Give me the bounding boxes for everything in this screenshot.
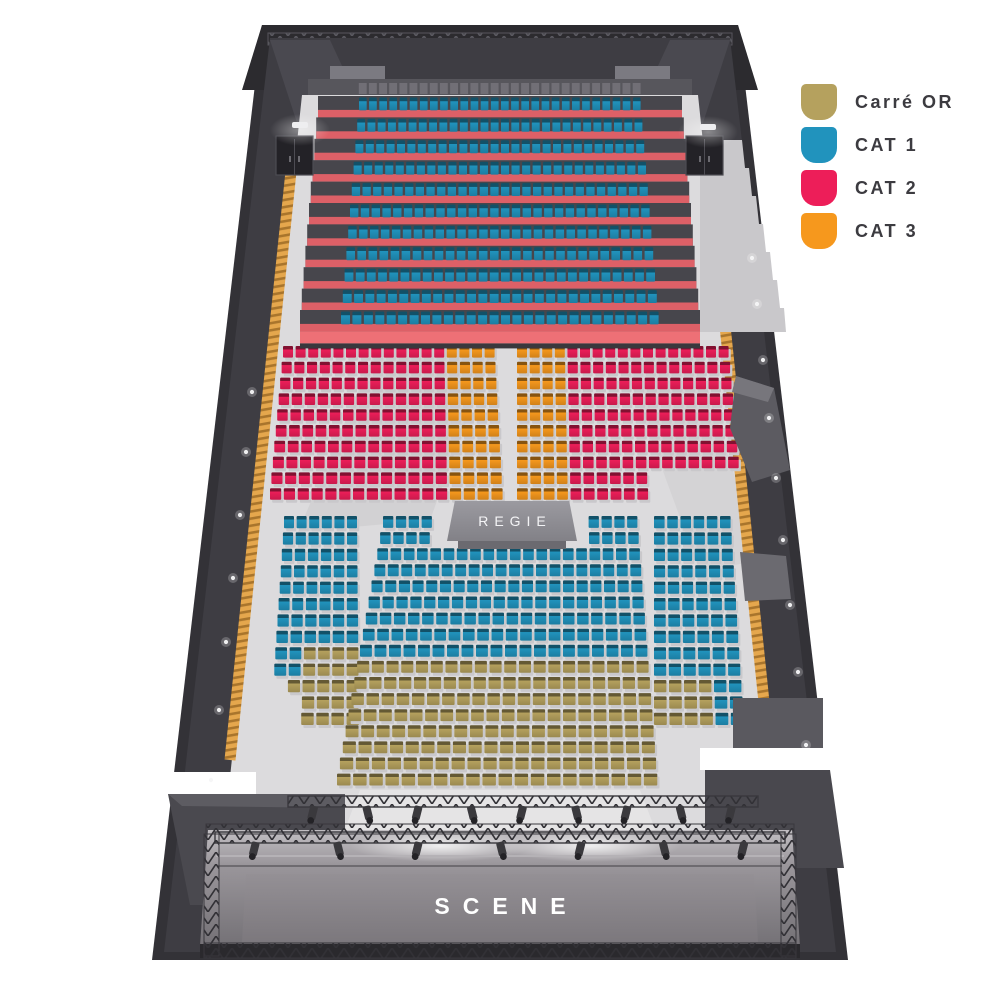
seat (432, 312, 441, 325)
seat (408, 488, 419, 500)
seat (481, 580, 492, 592)
seat (509, 564, 520, 576)
seat (658, 393, 668, 405)
seat (447, 205, 455, 218)
seat (305, 631, 317, 643)
seat (511, 119, 519, 132)
seat (686, 425, 696, 437)
seat (312, 488, 323, 500)
seat (510, 548, 521, 560)
seat (624, 269, 633, 282)
seat (355, 140, 363, 153)
seat (520, 645, 532, 657)
seat-backrest (420, 83, 428, 94)
seat (369, 774, 383, 786)
seat (317, 409, 328, 421)
seat (573, 119, 581, 132)
seat (481, 119, 489, 132)
seat (392, 725, 405, 737)
seat (475, 425, 486, 437)
wall-light-icon (788, 603, 792, 607)
seat (501, 312, 510, 325)
seat (553, 140, 561, 153)
seat (568, 362, 578, 374)
seat (521, 98, 529, 111)
seat (555, 205, 563, 218)
seat (684, 696, 697, 708)
seat (422, 613, 434, 625)
seat (545, 247, 554, 260)
seat (556, 393, 566, 405)
seat (434, 629, 446, 641)
seat (547, 774, 561, 786)
seat (387, 140, 395, 153)
seat (501, 205, 509, 218)
legend-item-c2: CAT 2 (801, 170, 954, 206)
seat (565, 183, 573, 196)
seat (489, 677, 501, 689)
seat (409, 441, 420, 453)
seat (595, 741, 608, 753)
seat (533, 693, 546, 705)
seat (597, 472, 608, 484)
seat (583, 457, 594, 469)
seat (393, 532, 404, 544)
seat (604, 312, 613, 325)
seat (478, 290, 487, 303)
seat (588, 226, 597, 239)
seat (373, 183, 381, 196)
seat (548, 709, 561, 721)
seat (364, 312, 373, 325)
seat (370, 226, 379, 239)
seat (491, 140, 499, 153)
seat (480, 597, 491, 609)
seat (375, 645, 387, 657)
seat (669, 680, 681, 692)
seat (332, 647, 344, 659)
seat (501, 247, 510, 260)
seat (347, 516, 357, 528)
seat (428, 140, 436, 153)
seat (504, 661, 516, 673)
wing-tower-right (733, 698, 823, 748)
seat (483, 548, 494, 560)
seat (422, 362, 432, 374)
seat (409, 409, 420, 421)
seat (670, 378, 680, 390)
seat (590, 580, 601, 592)
seat (359, 741, 372, 753)
seat (322, 516, 332, 528)
seat-backrest (541, 83, 549, 94)
seat (396, 516, 406, 528)
seat (628, 774, 642, 786)
seat (319, 631, 331, 643)
seat (608, 409, 618, 421)
regie-booth: REGIE (447, 501, 577, 541)
seat (548, 661, 560, 673)
seat (501, 140, 509, 153)
seat (471, 98, 479, 111)
seat (436, 205, 444, 218)
seat (637, 661, 649, 673)
seat (377, 629, 389, 641)
seat (699, 680, 711, 692)
legend-label: Carré OR (855, 92, 954, 113)
seat (273, 457, 284, 469)
seat (642, 741, 655, 753)
seat (620, 393, 630, 405)
wall-light-icon (750, 256, 754, 260)
seat (604, 580, 615, 592)
wall-light-icon (767, 416, 771, 420)
seat (608, 677, 620, 689)
seat (634, 425, 644, 437)
seat (523, 564, 534, 576)
seat (634, 247, 643, 260)
seat (418, 140, 426, 153)
seat (697, 393, 707, 405)
seat (682, 598, 694, 610)
seat (356, 758, 369, 770)
seat (654, 696, 667, 708)
seat (445, 661, 457, 673)
seat (654, 631, 666, 643)
seat (707, 516, 718, 528)
seat (534, 661, 546, 673)
seat (532, 119, 540, 132)
seat (419, 119, 427, 132)
seat (583, 441, 594, 453)
seat (383, 393, 393, 405)
seat (643, 226, 652, 239)
seat (404, 758, 417, 770)
seat (615, 532, 626, 544)
seat (347, 598, 358, 610)
seat (582, 98, 590, 111)
seat (349, 709, 362, 721)
seat (646, 393, 656, 405)
wall-light-icon (209, 778, 213, 782)
seat (353, 488, 364, 500)
seat (354, 457, 365, 469)
seat (618, 580, 629, 592)
seat (406, 162, 414, 175)
seat (320, 598, 331, 610)
seat (372, 758, 385, 770)
seat (512, 247, 521, 260)
seat (398, 119, 406, 132)
seat (359, 98, 367, 111)
seat (453, 741, 466, 753)
legend-label: CAT 1 (855, 135, 918, 156)
seat (372, 661, 384, 673)
seat (330, 409, 341, 421)
seat (563, 629, 575, 641)
seat (449, 425, 460, 437)
seat (621, 645, 633, 657)
seat (600, 247, 609, 260)
seat (533, 205, 541, 218)
seat (318, 664, 330, 676)
seat-block-tribune-cat1[interactable] (300, 79, 700, 348)
seat (632, 597, 643, 609)
wall-light-icon (238, 513, 242, 517)
seat (634, 409, 644, 421)
seat (552, 98, 560, 111)
seat (596, 162, 604, 175)
seat-backrest (552, 83, 560, 94)
seat (412, 269, 421, 282)
seat (607, 393, 617, 405)
seat (518, 693, 531, 705)
seat (610, 725, 623, 737)
seat (534, 226, 543, 239)
seat (623, 98, 631, 111)
seat (596, 457, 607, 469)
seat (571, 488, 582, 500)
seat (517, 472, 528, 484)
seat (304, 409, 315, 421)
seat (292, 393, 302, 405)
seat (712, 631, 724, 643)
seat (563, 613, 575, 625)
seat (644, 774, 658, 786)
seat (394, 183, 402, 196)
seat (472, 693, 485, 705)
seat (638, 312, 647, 325)
seat (325, 488, 336, 500)
seat (533, 677, 545, 689)
seat (313, 472, 324, 484)
seat (281, 565, 292, 577)
seat (442, 693, 455, 705)
seat (501, 183, 509, 196)
seat (400, 98, 408, 111)
seat (467, 580, 478, 592)
seat (395, 488, 406, 500)
seat (319, 614, 330, 626)
seat (523, 205, 531, 218)
seat (294, 565, 305, 577)
seat (511, 140, 519, 153)
seat (466, 597, 477, 609)
seat (506, 629, 518, 641)
seat (374, 564, 385, 576)
seat (413, 247, 422, 260)
seat (332, 664, 344, 676)
seat (592, 98, 600, 111)
seat (585, 162, 593, 175)
seat (331, 713, 344, 725)
seat (410, 597, 421, 609)
seat (318, 647, 330, 659)
seat (715, 457, 726, 469)
wall-light-icon (231, 576, 235, 580)
seat (422, 516, 432, 528)
seat (657, 362, 667, 374)
seat (293, 582, 304, 594)
seat (434, 269, 443, 282)
seat (445, 269, 454, 282)
seat (646, 409, 656, 421)
seat (342, 425, 353, 437)
seat (698, 647, 710, 659)
seat (411, 290, 420, 303)
seat (391, 247, 400, 260)
seat (383, 516, 393, 528)
seat (439, 119, 447, 132)
seat (609, 457, 620, 469)
seat (490, 269, 499, 282)
seat (448, 393, 458, 405)
seat (627, 758, 640, 770)
seat (469, 741, 482, 753)
seat (458, 183, 466, 196)
seat (422, 472, 433, 484)
seat-backrest (430, 83, 438, 94)
seat (319, 378, 329, 390)
seat (584, 488, 595, 500)
seat (711, 614, 723, 626)
seat (520, 629, 532, 641)
seat (490, 312, 499, 325)
seat (347, 647, 359, 659)
seat (728, 457, 739, 469)
seat (385, 162, 393, 175)
seat (622, 441, 633, 453)
seat (658, 378, 668, 390)
seat (369, 677, 381, 689)
stage-label: SCENE (300, 893, 700, 920)
seat (345, 269, 354, 282)
seat (317, 696, 329, 708)
seat (617, 162, 625, 175)
seat (708, 532, 719, 544)
seat (388, 564, 399, 576)
seat (546, 290, 555, 303)
seat-block-low-center[interactable] (337, 516, 660, 789)
seat (619, 362, 629, 374)
seat (277, 409, 288, 421)
seat (602, 532, 613, 544)
seat (342, 441, 353, 453)
seat (470, 119, 478, 132)
seat (654, 532, 665, 544)
seat (714, 680, 726, 692)
seat (729, 680, 741, 692)
seat (317, 680, 329, 692)
seat (700, 696, 713, 708)
seat (456, 269, 465, 282)
seat (468, 247, 477, 260)
seat (548, 725, 561, 737)
seat (630, 564, 641, 576)
seat (512, 226, 521, 239)
seat (627, 312, 636, 325)
seat (276, 631, 288, 643)
seat (544, 205, 552, 218)
seat (468, 226, 477, 239)
seat (584, 140, 592, 153)
seat (309, 516, 319, 528)
seat (491, 162, 499, 175)
seat (684, 664, 696, 676)
seat (391, 548, 402, 560)
seat (502, 709, 515, 721)
seat (530, 378, 540, 390)
seat (569, 409, 579, 421)
seat (532, 140, 540, 153)
seat (593, 693, 606, 705)
seat (404, 548, 415, 560)
seat (450, 98, 458, 111)
seat (592, 312, 601, 325)
seat (490, 247, 499, 260)
seat (435, 247, 444, 260)
seat (381, 488, 392, 500)
seat (602, 516, 612, 528)
seat (436, 613, 448, 625)
seat (357, 393, 367, 405)
seat (593, 119, 601, 132)
seat (479, 205, 487, 218)
seat (557, 488, 568, 500)
seat (270, 488, 281, 500)
seat (290, 647, 302, 659)
seat (387, 661, 399, 673)
seat (426, 183, 434, 196)
seat (543, 393, 553, 405)
seat (435, 441, 446, 453)
seat (345, 378, 355, 390)
seat (531, 758, 544, 770)
seat (327, 457, 338, 469)
seat (674, 441, 685, 453)
tribune-riser (302, 303, 698, 311)
seat (332, 378, 342, 390)
seat (343, 290, 352, 303)
seat (595, 409, 605, 421)
seat (384, 362, 394, 374)
seat (366, 613, 378, 625)
seat (422, 290, 431, 303)
seat (635, 269, 644, 282)
seat (595, 758, 608, 770)
seat (569, 425, 579, 437)
seat (579, 269, 588, 282)
seat (491, 119, 499, 132)
seat (478, 312, 487, 325)
seat (448, 183, 456, 196)
seat (594, 378, 604, 390)
seat (388, 290, 397, 303)
seat (389, 98, 397, 111)
seat (624, 709, 637, 721)
seat (563, 741, 576, 753)
seat (347, 549, 357, 561)
seat (626, 140, 634, 153)
seat (577, 629, 589, 641)
seat (661, 441, 672, 453)
seat (548, 677, 560, 689)
seat (352, 312, 361, 325)
seat (382, 409, 393, 421)
seat (412, 693, 425, 705)
seat (438, 597, 449, 609)
seat (535, 312, 544, 325)
